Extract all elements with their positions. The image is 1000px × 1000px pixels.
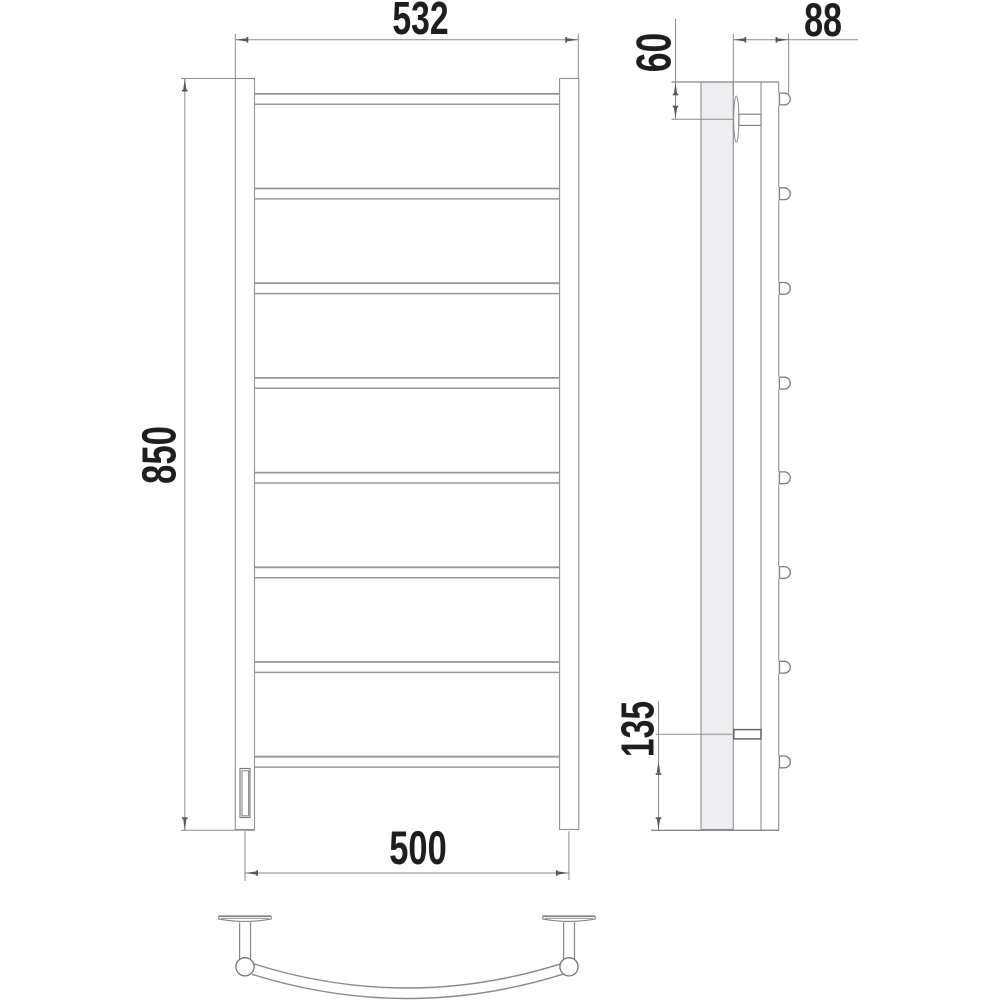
svg-text:135: 135 [611,701,664,757]
svg-text:88: 88 [804,0,842,46]
svg-text:850: 850 [132,426,186,484]
svg-text:532: 532 [392,0,448,44]
svg-text:60: 60 [627,33,682,73]
svg-text:500: 500 [389,820,446,874]
